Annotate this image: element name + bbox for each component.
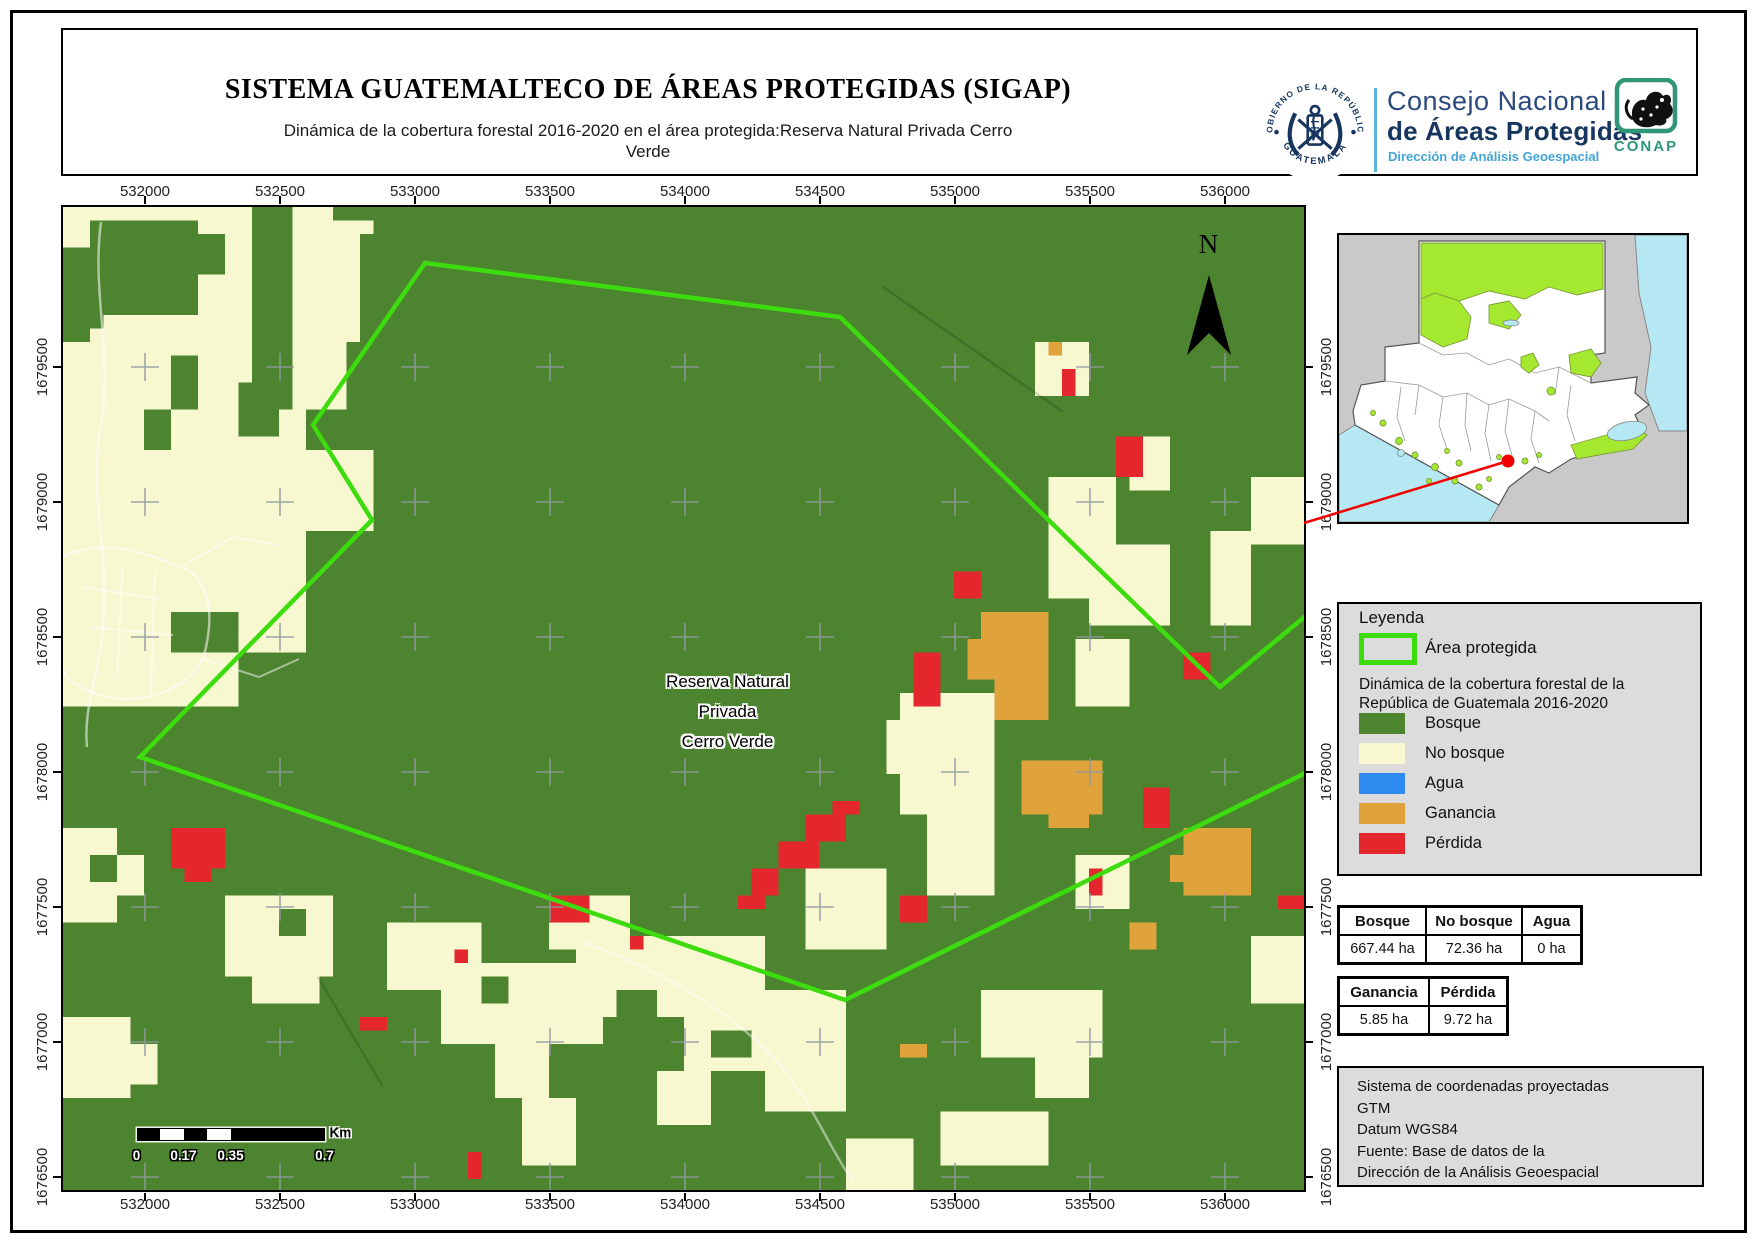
axis-tick — [1305, 1041, 1313, 1043]
table-header-cell: Agua — [1522, 907, 1581, 935]
axis-tick — [1305, 366, 1313, 368]
legend-swatch-ganancia — [1359, 803, 1405, 824]
title-panel: SISTEMA GUATEMALTECO DE ÁREAS PROTEGIDAS… — [61, 28, 1698, 176]
y-axis-label: 1678500 — [1318, 597, 1334, 677]
projection-info-line: GTM — [1357, 1100, 1390, 1117]
y-axis-label: 1678500 — [34, 597, 50, 677]
page-subtitle: Dinámica de la cobertura forestal 2016-2… — [276, 120, 1021, 162]
y-axis-label: 1677000 — [1318, 1002, 1334, 1082]
area-label-line: Privada — [618, 697, 838, 727]
y-axis-label: 1679500 — [34, 327, 50, 407]
conap-logo-icon: CONAP — [1613, 78, 1679, 158]
axis-tick — [53, 1041, 61, 1043]
area-stats-table: BosqueNo bosqueAgua667.44 ha72.36 ha0 ha — [1337, 905, 1583, 965]
projection-info-line: Datum WGS84 — [1357, 1121, 1458, 1138]
axis-tick — [1224, 1193, 1226, 1201]
axis-tick — [1305, 906, 1313, 908]
axis-tick — [414, 1193, 416, 1201]
y-axis-label: 1676500 — [34, 1137, 50, 1217]
legend-class-label: Ganancia — [1425, 804, 1496, 823]
table-value-cell: 667.44 ha — [1339, 935, 1426, 963]
projection-info-line: Dirección de la Análisis Geoespacial — [1357, 1164, 1599, 1181]
axis-tick — [1089, 196, 1091, 204]
guatemala-government-emblem-icon: GOBIERNO DE LA REPÚBLICA GUATEMALA — [1263, 78, 1367, 182]
axis-tick — [954, 1193, 956, 1201]
legend-class-label: Pérdida — [1425, 834, 1482, 853]
table-value-cell: 0 ha — [1522, 935, 1581, 963]
scale-bar-value: 0.35 — [201, 1148, 261, 1163]
legend-row: Agua — [1359, 773, 1505, 794]
map-document: { "page": { "title": "SISTEMA GUATEMALTE… — [0, 0, 1754, 1240]
scale-bar-value: 0.7 — [295, 1148, 355, 1163]
change-stats-table: GananciaPérdida5.85 ha9.72 ha — [1337, 976, 1509, 1036]
y-axis-label: 1678000 — [1318, 732, 1334, 812]
y-axis-label: 1679000 — [34, 462, 50, 542]
legend-swatch-no-bosque — [1359, 743, 1405, 764]
scale-bar-segment — [207, 1129, 231, 1140]
table-header-cell: Ganancia — [1339, 978, 1429, 1006]
legend-row: Bosque — [1359, 713, 1505, 734]
axis-tick — [549, 1193, 551, 1201]
legend-class-label: No bosque — [1425, 744, 1505, 763]
axis-tick — [414, 196, 416, 204]
axis-tick — [1305, 771, 1313, 773]
conap-logo-text: CONAP — [1614, 138, 1678, 155]
protected-area-swatch — [1359, 633, 1417, 665]
protected-area-label: Reserva Natural Privada Cerro Verde — [618, 667, 838, 757]
axis-tick — [144, 1193, 146, 1201]
legend-class-list: BosqueNo bosqueAguaGananciaPérdida — [1359, 713, 1505, 863]
axis-tick — [954, 196, 956, 204]
lake-peten-itza — [1503, 320, 1519, 326]
axis-tick — [1224, 196, 1226, 204]
y-axis-label: 1679500 — [1318, 327, 1334, 407]
y-axis-label: 1678000 — [34, 732, 50, 812]
scale-bar-unit: Km — [330, 1125, 352, 1140]
axis-tick — [549, 196, 551, 204]
legend-swatch-bosque — [1359, 713, 1405, 734]
y-axis-label: 1677000 — [34, 1002, 50, 1082]
axis-tick — [279, 196, 281, 204]
axis-tick — [53, 636, 61, 638]
page-title: SISTEMA GUATEMALTECO DE ÁREAS PROTEGIDAS… — [133, 74, 1163, 106]
north-label: N — [1191, 229, 1227, 260]
title-text-wrap: SISTEMA GUATEMALTECO DE ÁREAS PROTEGIDAS… — [133, 74, 1163, 162]
legend-swatch-pérdida — [1359, 833, 1405, 854]
axis-tick — [1305, 1176, 1313, 1178]
table-value-cell: 72.36 ha — [1426, 935, 1522, 963]
locator-callout — [1290, 445, 1550, 545]
org-name-line2: de Áreas Protegidas — [1387, 116, 1642, 147]
axis-tick — [53, 906, 61, 908]
scale-bar-segment — [160, 1129, 184, 1140]
area-label-line: Reserva Natural — [618, 667, 838, 697]
org-subtitle: Dirección de Análisis Geoespacial — [1388, 149, 1599, 164]
y-axis-label: 1677500 — [34, 867, 50, 947]
legend-class-label: Bosque — [1425, 714, 1481, 733]
axis-tick — [1089, 1193, 1091, 1201]
axis-tick — [53, 501, 61, 503]
axis-tick — [53, 1176, 61, 1178]
table-header-cell: Bosque — [1339, 907, 1426, 935]
axis-tick — [684, 196, 686, 204]
table-value-cell: 5.85 ha — [1339, 1006, 1429, 1034]
axis-tick — [53, 771, 61, 773]
axis-tick — [819, 1193, 821, 1201]
area-label-line: Cerro Verde — [618, 727, 838, 757]
axis-tick — [279, 1193, 281, 1201]
scale-bar — [137, 1128, 325, 1141]
table-value-cell: 9.72 ha — [1429, 1006, 1507, 1034]
axis-tick — [53, 366, 61, 368]
y-axis-label: 1676500 — [1318, 1137, 1334, 1217]
axis-tick — [1305, 636, 1313, 638]
brand-divider — [1374, 88, 1377, 172]
axis-tick — [684, 1193, 686, 1201]
legend-row: Pérdida — [1359, 833, 1505, 854]
org-name-line1: Consejo Nacional — [1387, 86, 1607, 117]
axis-tick — [819, 196, 821, 204]
legend-row: No bosque — [1359, 743, 1505, 764]
y-axis-label: 1677500 — [1318, 867, 1334, 947]
axis-tick — [144, 196, 146, 204]
main-map: N Reserva Natural Privada Cerro Verde Km… — [61, 205, 1306, 1192]
table-header-cell: No bosque — [1426, 907, 1522, 935]
projection-info-line: Sistema de coordenadas proyectadas — [1357, 1078, 1609, 1095]
legend-swatch-agua — [1359, 773, 1405, 794]
legend-title: Leyenda — [1359, 608, 1424, 628]
legend-row: Ganancia — [1359, 803, 1505, 824]
legend-dynamics-line: República de Guatemala 2016-2020 — [1359, 695, 1608, 713]
projection-info-line: Fuente: Base de datos de la — [1357, 1143, 1545, 1160]
location-dot-icon — [1502, 455, 1515, 468]
legend-dynamics-line: Dinámica de la cobertura forestal de la — [1359, 676, 1624, 694]
protected-area-legend-label: Área protegida — [1425, 638, 1537, 658]
table-header-cell: Pérdida — [1429, 978, 1507, 1006]
legend-class-label: Agua — [1425, 774, 1464, 793]
